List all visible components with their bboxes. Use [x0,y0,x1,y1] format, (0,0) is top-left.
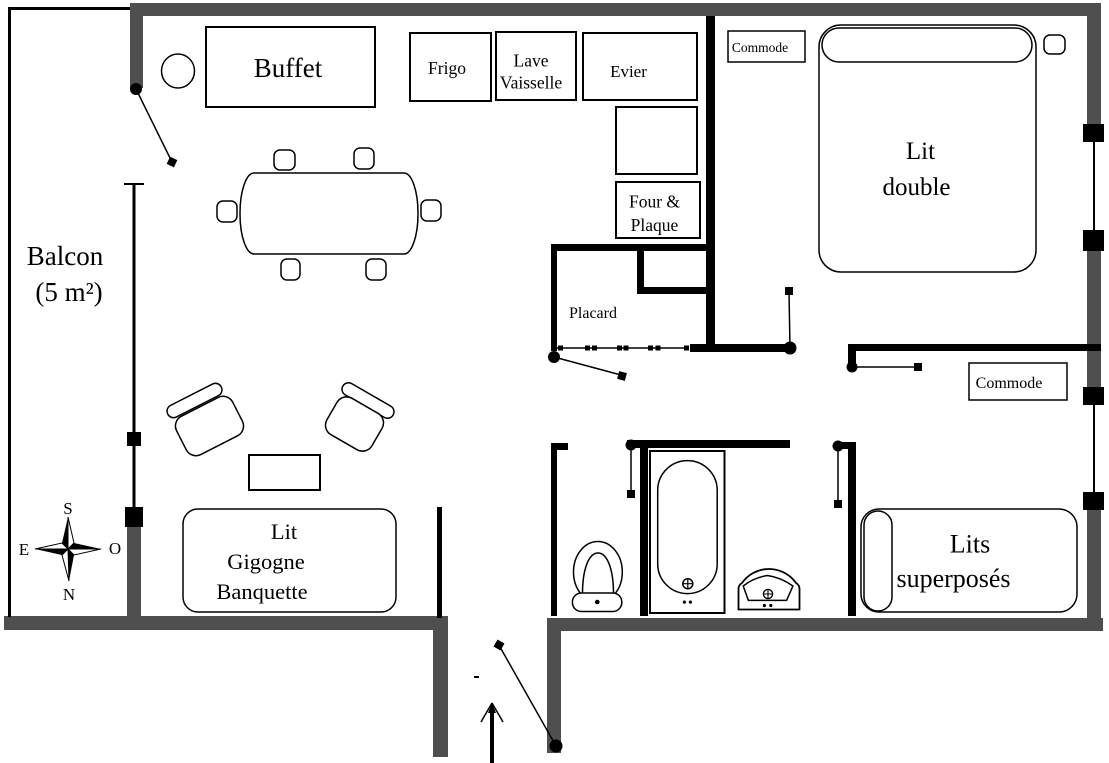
svg-text:(5 m²): (5 m²) [35,277,102,307]
svg-text:Frigo: Frigo [428,58,466,78]
svg-text:S: S [63,499,72,518]
svg-text:Buffet: Buffet [254,53,323,83]
svg-text:Gigogne: Gigogne [227,549,305,574]
svg-text:double: double [882,174,950,201]
svg-text:N: N [63,585,75,604]
svg-text:Lave: Lave [514,51,549,71]
svg-text:Lit: Lit [271,519,298,544]
svg-text:Balcon: Balcon [27,241,104,271]
svg-text:Lits: Lits [950,530,990,559]
svg-text:Banquette: Banquette [216,579,307,604]
svg-text:Plaque: Plaque [631,215,679,235]
svg-text:Commode: Commode [732,40,788,55]
svg-text:Lit: Lit [906,138,935,165]
svg-text:O: O [109,539,121,558]
svg-text:Vaisselle: Vaisselle [500,73,562,93]
svg-text:E: E [19,540,29,559]
svg-text:Placard: Placard [569,305,617,322]
svg-text:Evier: Evier [610,62,647,81]
svg-text:superposés: superposés [896,564,1010,593]
svg-text:Commode: Commode [976,375,1043,392]
svg-text:Four &: Four & [629,192,680,212]
